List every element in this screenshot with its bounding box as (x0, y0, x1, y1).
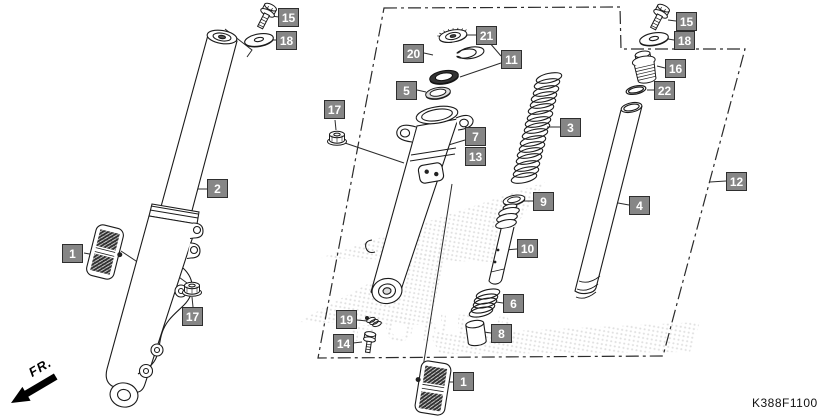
fork-spring-3 (510, 71, 562, 186)
parts-diagram-page: HONDA (0, 0, 840, 420)
oil-seal-11 (429, 68, 460, 86)
callout-17-upper[interactable]: 17 (324, 100, 345, 119)
diagram-code: K388F1100 (752, 396, 818, 410)
callout-16[interactable]: 16 (665, 59, 686, 78)
callout-18-left[interactable]: 18 (276, 31, 297, 50)
bottom-reflector (411, 359, 452, 416)
callout-5[interactable]: 5 (396, 81, 417, 100)
oil-lock-piece-8 (465, 319, 486, 346)
callout-15-left[interactable]: 15 (278, 8, 299, 27)
right-top-bolt (646, 2, 671, 32)
callout-2[interactable]: 2 (207, 179, 228, 198)
callout-14[interactable]: 14 (333, 334, 354, 353)
callout-18-right[interactable]: 18 (674, 31, 695, 50)
fork-cap-21 (436, 26, 468, 45)
stopper-ring-20 (455, 45, 484, 61)
callout-1-left[interactable]: 1 (62, 244, 83, 263)
left-reflector (85, 223, 128, 281)
left-fork-assembly (106, 28, 238, 409)
callout-4[interactable]: 4 (629, 196, 650, 215)
fork-bolt-16 (631, 49, 659, 85)
callout-22[interactable]: 22 (654, 81, 675, 100)
callout-10[interactable]: 10 (517, 239, 538, 258)
callout-21[interactable]: 21 (476, 26, 497, 45)
callout-8[interactable]: 8 (491, 324, 512, 343)
callout-9[interactable]: 9 (533, 192, 554, 211)
callout-3[interactable]: 3 (560, 118, 581, 137)
callout-17-lower[interactable]: 17 (182, 307, 203, 326)
callout-11[interactable]: 11 (501, 50, 522, 69)
o-ring-22 (625, 84, 646, 96)
callout-15-right[interactable]: 15 (676, 12, 697, 31)
callout-1-bottom[interactable]: 1 (453, 372, 474, 391)
left-axle-nut (183, 282, 202, 296)
right-top-washer (639, 31, 670, 48)
slider-bushing-5 (425, 86, 452, 102)
pivot-nut-17 (328, 131, 347, 145)
callout-13[interactable]: 13 (465, 147, 486, 166)
callout-20[interactable]: 20 (403, 44, 424, 63)
callout-6[interactable]: 6 (503, 294, 524, 313)
left-top-washer (244, 32, 275, 49)
callout-7[interactable]: 7 (465, 127, 486, 146)
callout-19[interactable]: 19 (336, 310, 357, 329)
left-top-bolt (253, 1, 278, 31)
callout-12[interactable]: 12 (726, 172, 747, 191)
